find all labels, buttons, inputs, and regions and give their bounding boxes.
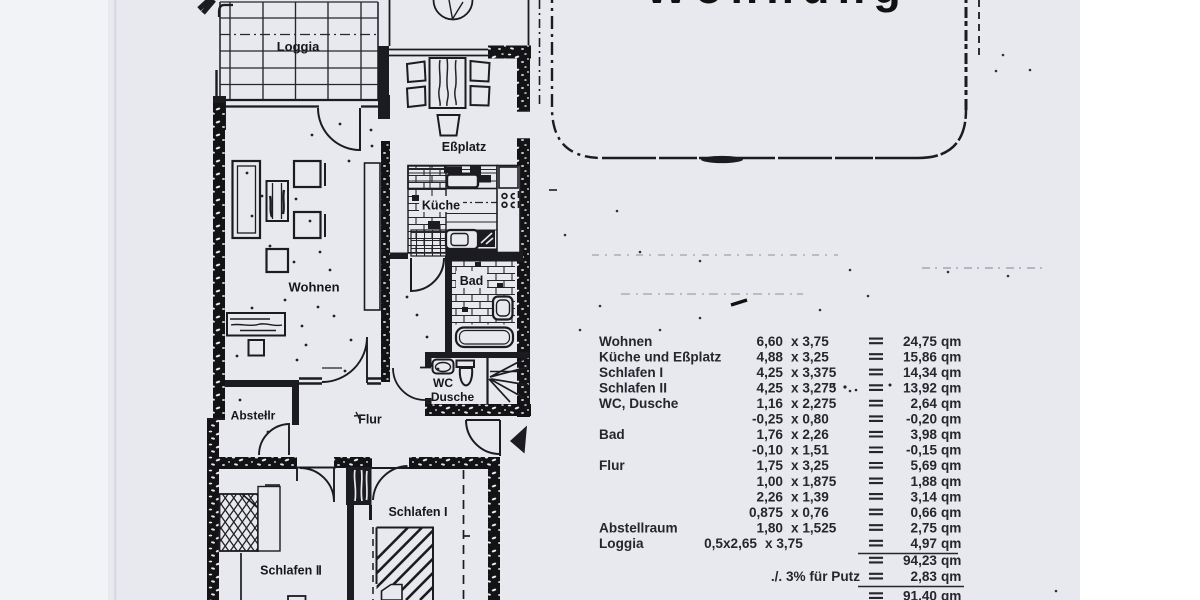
- svg-text:2,26: 2,26: [757, 489, 784, 504]
- svg-text:qm: qm: [941, 349, 961, 364]
- svg-text:qm: qm: [941, 474, 961, 489]
- svg-text:Küche und Eßplatz: Küche und Eßplatz: [599, 349, 722, 364]
- svg-text:qm: qm: [941, 505, 961, 520]
- svg-text:x 1,39: x 1,39: [791, 489, 829, 504]
- svg-text:x 3,75: x 3,75: [791, 334, 829, 349]
- svg-text:4,88: 4,88: [757, 349, 784, 364]
- svg-text:5,69: 5,69: [911, 458, 938, 473]
- svg-text:qm: qm: [941, 443, 961, 458]
- svg-text:2,64: 2,64: [911, 396, 938, 411]
- svg-text:Bad: Bad: [460, 274, 484, 288]
- svg-text:x 1,525: x 1,525: [791, 520, 837, 535]
- svg-text:qm: qm: [941, 381, 961, 396]
- svg-text:3,14: 3,14: [911, 489, 938, 504]
- svg-text:1,16: 1,16: [757, 396, 784, 411]
- svg-text:x 3,275: x 3,275: [791, 381, 837, 396]
- svg-text:Wohnen: Wohnen: [599, 334, 652, 349]
- svg-text:qm: qm: [941, 412, 961, 427]
- svg-text:x 1,875: x 1,875: [791, 474, 837, 489]
- svg-text:Flur: Flur: [599, 458, 625, 473]
- svg-text:-0,25: -0,25: [752, 412, 783, 427]
- svg-text:-0,10: -0,10: [752, 443, 783, 458]
- svg-text:Wohnen: Wohnen: [288, 280, 339, 295]
- svg-text:94,23: 94,23: [903, 553, 937, 568]
- svg-text:6,60: 6,60: [757, 334, 783, 349]
- svg-text:Loggia: Loggia: [277, 39, 320, 54]
- svg-text:qm: qm: [941, 365, 961, 380]
- svg-text:0,5x2,65: 0,5x2,65: [704, 536, 757, 551]
- svg-text:1,88: 1,88: [911, 474, 938, 489]
- svg-text:Küche: Küche: [422, 199, 460, 213]
- svg-text:Abstełlr: Abstełlr: [231, 409, 276, 423]
- svg-text:13,92: 13,92: [903, 381, 937, 396]
- svg-text:qm: qm: [941, 427, 961, 442]
- svg-text:Bad: Bad: [599, 427, 625, 442]
- svg-text:0,66: 0,66: [911, 505, 938, 520]
- svg-text:WC: WC: [433, 376, 453, 390]
- svg-text:x 3,25: x 3,25: [791, 458, 829, 473]
- svg-text:2,83: 2,83: [911, 569, 938, 584]
- svg-text:15,86: 15,86: [903, 349, 937, 364]
- svg-text:-0,15: -0,15: [906, 443, 937, 458]
- svg-text:4,25: 4,25: [757, 365, 784, 380]
- svg-text:2,75: 2,75: [911, 520, 938, 535]
- svg-text:qm: qm: [941, 489, 961, 504]
- svg-text:1,80: 1,80: [757, 520, 783, 535]
- svg-text:x 3,375: x 3,375: [791, 365, 837, 380]
- svg-text:Schlafen Ⅱ: Schlafen Ⅱ: [260, 564, 322, 578]
- svg-text:qm: qm: [941, 458, 961, 473]
- svg-text:x 3,75: x 3,75: [765, 536, 803, 551]
- svg-text:4,25: 4,25: [757, 381, 784, 396]
- svg-text:Eßplatz: Eßplatz: [442, 140, 486, 154]
- svg-text:4,97: 4,97: [911, 536, 937, 551]
- svg-text:Loggia: Loggia: [599, 536, 644, 551]
- svg-text:qm: qm: [941, 553, 961, 568]
- svg-text:Schlafen I: Schlafen I: [599, 365, 663, 380]
- svg-text:qm: qm: [941, 536, 961, 551]
- svg-text:qm: qm: [941, 589, 961, 600]
- svg-text:Schlafen II: Schlafen II: [599, 381, 667, 396]
- svg-text:Wohnung: Wohnung: [645, 0, 909, 13]
- svg-text:24,75: 24,75: [903, 334, 937, 349]
- svg-text:qm: qm: [941, 569, 961, 584]
- svg-text:Abstellraum: Abstellraum: [599, 520, 678, 535]
- svg-text:x 2,275: x 2,275: [791, 396, 837, 411]
- svg-text:x 3,25: x 3,25: [791, 349, 829, 364]
- svg-text:0,875: 0,875: [749, 505, 783, 520]
- svg-text:qm: qm: [941, 334, 961, 349]
- svg-text:x 1,51: x 1,51: [791, 443, 829, 458]
- svg-text:1,75: 1,75: [757, 458, 784, 473]
- svg-text:qm: qm: [941, 396, 961, 411]
- svg-text:14,34: 14,34: [903, 365, 937, 380]
- svg-text:Schlafen I: Schlafen I: [388, 505, 447, 519]
- svg-text:WC, Dusche: WC, Dusche: [599, 396, 679, 411]
- svg-text:1,76: 1,76: [757, 427, 784, 442]
- svg-text:x 0,80: x 0,80: [791, 412, 829, 427]
- svg-text:3,98: 3,98: [911, 427, 938, 442]
- svg-text:91,40: 91,40: [903, 589, 937, 600]
- svg-text:qm: qm: [941, 520, 961, 535]
- svg-text:-0,20: -0,20: [906, 412, 937, 427]
- svg-text:1,00: 1,00: [757, 474, 783, 489]
- svg-text:x 0,76: x 0,76: [791, 505, 829, 520]
- svg-text:./. 3% für Putz: ./. 3% für Putz: [771, 569, 860, 584]
- svg-text:Dusche: Dusche: [431, 390, 475, 404]
- svg-text:x 2,26: x 2,26: [791, 427, 829, 442]
